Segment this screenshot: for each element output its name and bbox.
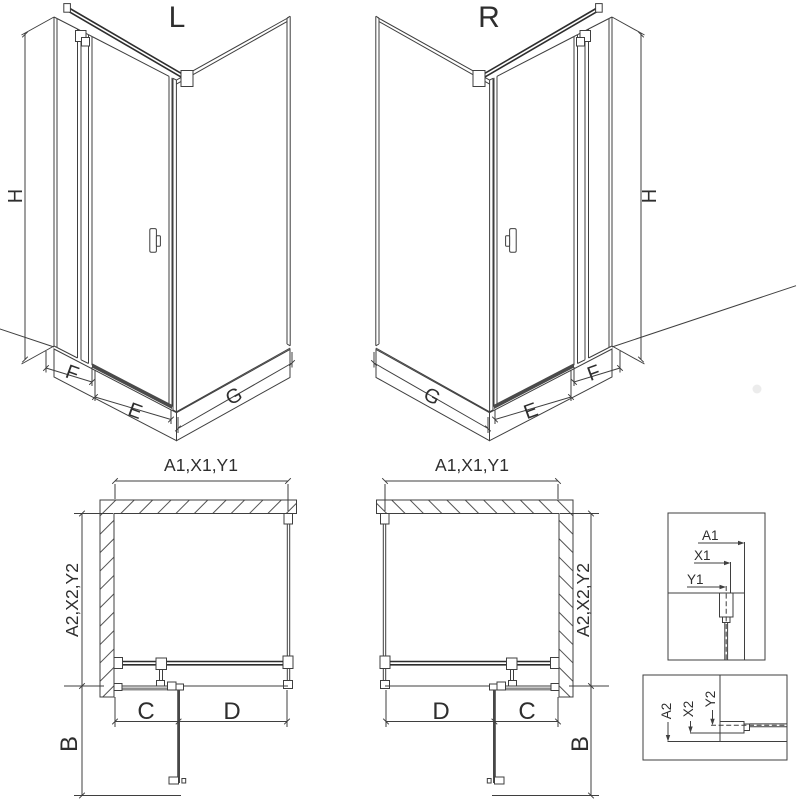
plan-l-width-label: A1,X1,Y1 xyxy=(164,455,238,475)
plan-r-swing-label: B xyxy=(567,736,594,752)
technical-drawing-page: L H F E G R H G E F A1,X1,Y1 A2,X2,Y2 C … xyxy=(0,0,800,800)
plan-l-fixed-label: C xyxy=(137,698,154,725)
dim-label-height-l: H xyxy=(5,189,27,203)
detail-1-axis-label: Y1 xyxy=(687,572,704,587)
canvas-background xyxy=(0,0,800,800)
plan-r-width-label: A1,X1,Y1 xyxy=(435,455,509,475)
detail-1-mid-label: X1 xyxy=(694,548,711,563)
watermark-dot xyxy=(753,385,762,394)
plan-l-depth-label: A2,X2,Y2 xyxy=(62,563,82,637)
variant-title-r: R xyxy=(478,1,500,34)
detail-2-mid-label: X2 xyxy=(681,701,696,718)
plan-l-swing-label: B xyxy=(56,736,83,752)
detail-2-outer-label: A2 xyxy=(659,703,674,720)
detail-1-outer-label: A1 xyxy=(702,528,719,543)
variant-title-l: L xyxy=(169,1,186,34)
plan-r-depth-label: A2,X2,Y2 xyxy=(573,563,593,637)
plan-l-door-label: D xyxy=(223,698,240,725)
plan-r-fixed-label: C xyxy=(518,698,535,725)
plan-r-door-label: D xyxy=(432,698,449,725)
detail-2-axis-label: Y2 xyxy=(703,691,718,708)
shower-enclosure-drawing: L H F E G R H G E F A1,X1,Y1 A2,X2,Y2 C … xyxy=(0,0,800,800)
dim-label-height-r: H xyxy=(639,189,661,203)
